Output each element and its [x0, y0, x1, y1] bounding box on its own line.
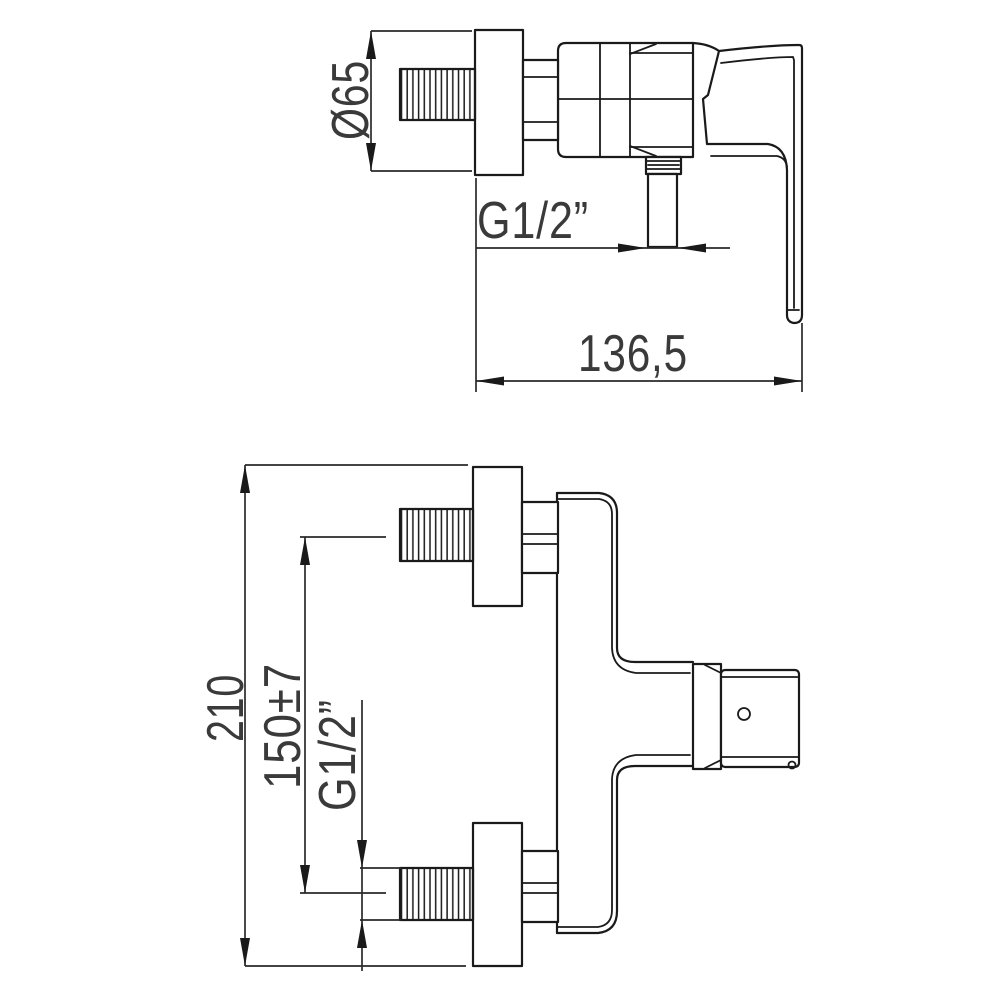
front-view: 210 150±7 G1/2”: [197, 465, 799, 971]
wall-flange-bottom-front: [473, 823, 522, 966]
wall-flange-top-front: [473, 467, 522, 606]
dim-label-flange-diameter: Ø65: [322, 60, 380, 140]
hex-nut-side: [523, 60, 558, 140]
faucet-dimension-drawing: Ø65 G1/2” 136,5: [0, 0, 1000, 1000]
dimension-inlet-thread: G1/2”: [309, 699, 401, 971]
lever-handle-side: [693, 43, 802, 323]
mixer-body-front: [557, 493, 693, 933]
dim-label-outlet-thread: G1/2”: [477, 192, 589, 250]
hex-nut-bottom-front: [522, 851, 558, 922]
handle-block: [721, 670, 799, 767]
handle-front: [693, 664, 799, 769]
dimension-depth: 136,5: [476, 323, 802, 392]
hex-nut-top-front: [522, 502, 558, 573]
wall-flange-side: [475, 30, 523, 175]
inlet-pipe-side: [400, 69, 475, 120]
technical-drawing-page: Ø65 G1/2” 136,5: [0, 0, 1000, 1000]
dim-label-depth: 136,5: [578, 325, 688, 383]
side-view: Ø65 G1/2” 136,5: [322, 30, 802, 392]
dim-label-overall-height: 210: [197, 674, 255, 742]
dim-label-inlet-thread: G1/2”: [309, 699, 367, 811]
mixer-body-side: [558, 43, 693, 157]
inlet-pipe-bottom-front: [400, 868, 473, 920]
dim-label-connection-spacing: 150±7: [254, 663, 312, 789]
inlet-pipe-top-front: [400, 509, 473, 561]
outlet-pipe-side: [646, 157, 681, 247]
